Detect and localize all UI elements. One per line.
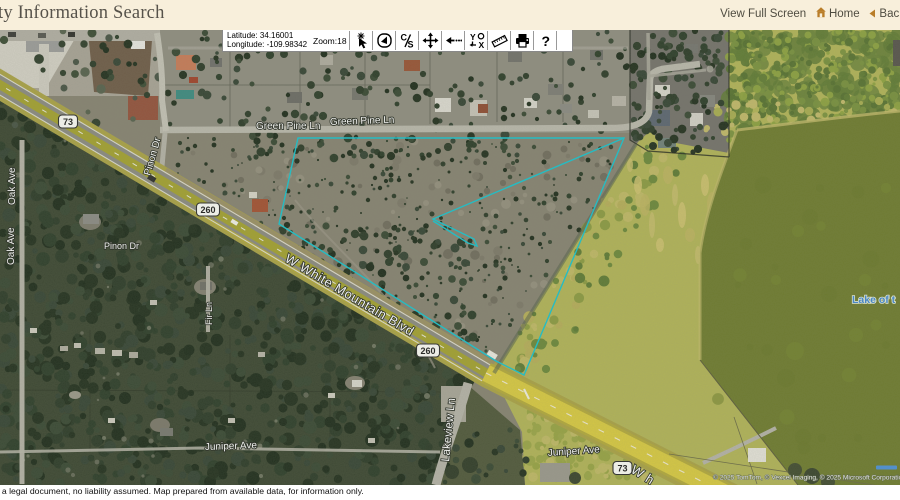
svg-text:?: ? bbox=[541, 33, 550, 49]
svg-text:Y: Y bbox=[470, 32, 476, 42]
svg-text:S: S bbox=[407, 40, 413, 50]
svg-text:C: C bbox=[400, 33, 407, 43]
svg-text:X: X bbox=[478, 40, 484, 49]
